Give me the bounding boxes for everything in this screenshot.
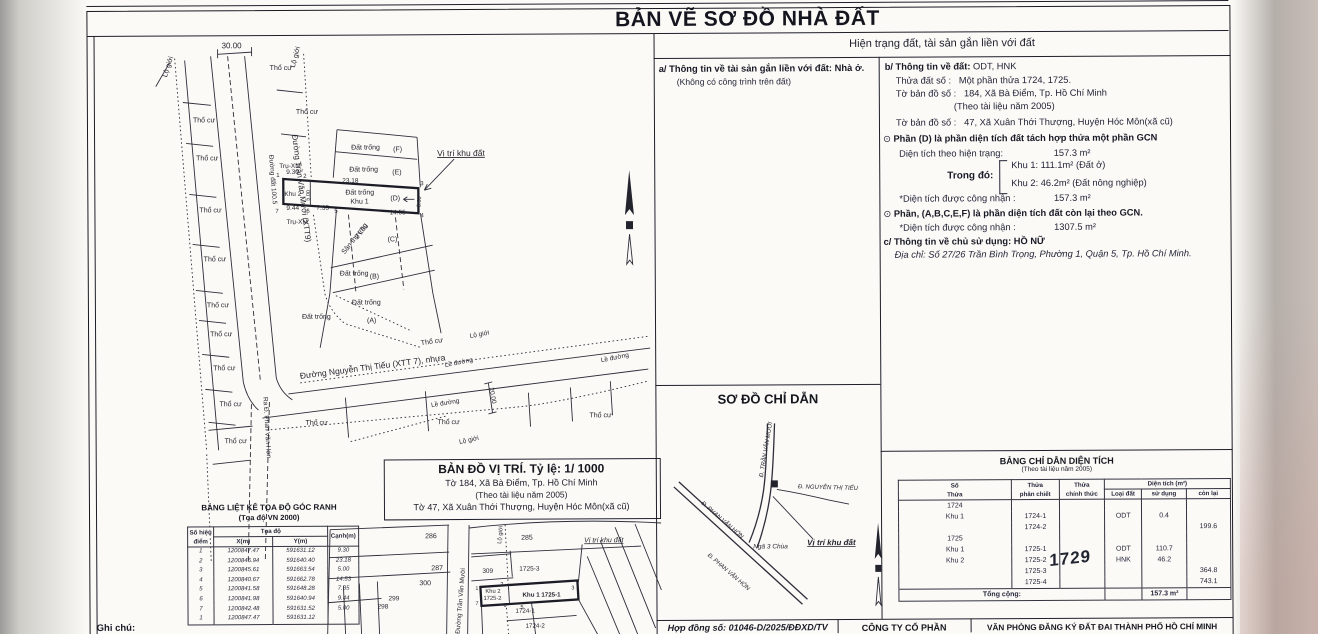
map-sheet-2-label: Tờ bản đồ số : xyxy=(896,117,956,127)
coord-edge: 5.00 xyxy=(328,566,359,576)
recognized-area-line-1: *Diện tích được công nhận : 157.3 m² xyxy=(899,193,1090,204)
area-split-parcel: 1724-2 xyxy=(1011,522,1059,533)
area-official-parcel xyxy=(1059,499,1104,511)
coord-edge: 9.44 xyxy=(328,595,359,605)
coords-table-title: BẢNG LIỆT KÊ TỌA ĐỘ GÓC RANH xyxy=(169,503,369,513)
area-header-group: Diện tích (m²) xyxy=(1104,479,1230,490)
registry-name: VĂN PHÒNG ĐĂNG KÝ ĐẤT ĐAI THÀNH PHỐ HỒ C… xyxy=(973,622,1232,632)
current-area-value: 157.3 m² xyxy=(1054,148,1091,158)
area-land-type xyxy=(1104,499,1141,511)
coord-x: 1200841.98 xyxy=(214,595,273,605)
location-map-title: BẢN ĐỒ VỊ TRÍ. Tỷ lệ: 1/ 1000 xyxy=(386,461,657,476)
coords-table: Số hiệu điểm Tọa độ Cạnh(m) X(m) Y(m) xyxy=(187,526,360,626)
area-official-parcel xyxy=(1059,511,1104,522)
coord-edge xyxy=(328,614,359,624)
company-name: CÔNG TY CỔ PHẦN xyxy=(840,622,969,633)
land-info-heading-label: b/ Thông tin về đất: xyxy=(885,61,971,71)
map-sheet-2-value: 47, Xã Xuân Thới Thượng, Huyện Hóc Môn(x… xyxy=(964,116,1173,127)
area-split-parcel xyxy=(1011,499,1059,511)
area-used xyxy=(1142,499,1186,511)
map-sheet-line: Tờ bản đồ số : 184, Xã Bà Điểm, Tp. Hồ C… xyxy=(896,88,1107,99)
area-remaining: 199.6 xyxy=(1186,521,1230,532)
coord-point: 4 xyxy=(188,576,214,586)
map-sheet-note: (Theo tài liệu năm 2005) xyxy=(954,101,1055,112)
coord-edge: 5.00 xyxy=(328,604,359,614)
coord-point: 5 xyxy=(188,586,214,596)
coords-header-edge: Cạnh(m) xyxy=(328,526,359,546)
owner-heading-label: c/ Thông tin về chủ sử dụng: xyxy=(884,236,1012,247)
coord-point: 3 xyxy=(188,567,214,577)
bracket-shape xyxy=(999,160,1007,194)
asset-info-heading: a/ Thông tin về tài sản gắn liền với đất… xyxy=(659,62,865,74)
area-parcel: Khu 1 xyxy=(899,511,1012,523)
coord-x: 1200845.61 xyxy=(214,566,273,576)
trong-do-label: Trong đó: xyxy=(947,170,993,181)
coord-y: 591663.54 xyxy=(273,566,328,576)
owner-heading: c/ Thông tin về chủ sử dụng: HỒ NỮ xyxy=(884,236,1045,247)
coord-point: 2 xyxy=(188,557,214,567)
coord-x: 1200842.48 xyxy=(214,605,273,615)
coord-point: 1 xyxy=(188,547,214,557)
area-parcel xyxy=(899,577,1012,589)
parcel-number-line: Thửa đất số : Một phần thửa 1724, 1725. xyxy=(896,75,1071,86)
area-split-parcel: 1725-4 xyxy=(1012,577,1060,589)
area-used xyxy=(1142,565,1186,576)
area-remaining xyxy=(1186,532,1230,543)
area-land-type: ODT xyxy=(1104,510,1141,521)
area-parcel: 1725 xyxy=(899,533,1012,545)
area-land-type: ODT xyxy=(1105,543,1142,554)
area-used xyxy=(1142,521,1186,532)
asset-info-note: (Không có công trình trên đất) xyxy=(677,76,791,87)
location-map-line2: (Theo tài liệu năm 2005) xyxy=(386,489,657,500)
current-area-line: Diện tích theo hiện trạng: 157.3 m² xyxy=(899,148,1090,159)
area-used xyxy=(1142,576,1186,588)
coords-header-group: Tọa độ xyxy=(214,526,328,537)
recognized-area-2-value: 1307.5 m² xyxy=(1054,222,1096,232)
area-remaining: 743.1 xyxy=(1187,576,1231,588)
map-sheet-value: 184, Xã Bà Điểm, Tp. Hồ Chí Minh xyxy=(964,88,1107,99)
coord-point: 6 xyxy=(188,595,214,605)
area-parcel: Khu 2 xyxy=(899,555,1012,567)
area-official-parcel xyxy=(1060,522,1105,533)
map-sheet-line-2: Tờ bản đồ số : 47, Xã Xuân Thới Thượng, … xyxy=(896,116,1173,127)
area-total-label: Tổng cộng: xyxy=(899,588,1105,601)
coord-x: 1200840.67 xyxy=(214,576,273,586)
area-split-parcel: 1724-1 xyxy=(1011,511,1059,522)
recognized-area-2-label: *Diện tích được công nhận : xyxy=(899,222,1051,233)
area-used: 46.2 xyxy=(1142,554,1186,565)
area-parcel xyxy=(899,566,1012,578)
coord-x: 1200847.47 xyxy=(214,547,273,557)
parcel-number-label: Thửa đất số : xyxy=(896,75,951,85)
bullet-d-text: Phần (D) là phần diện tích đất tách hợp … xyxy=(893,132,1157,143)
area-land-type xyxy=(1105,521,1142,532)
area-total-row: Tổng cộng: 157.3 m² xyxy=(899,588,1231,602)
coord-point: 7 xyxy=(188,605,214,615)
location-map-line1: Tờ 184, Xã Bà Điểm, Tp. Hồ Chí Minh xyxy=(386,477,657,488)
bullet-abcef-text: Phần, (A,B,C,E,F) là phần diện tích đất … xyxy=(894,207,1143,218)
recognized-area-1-label: *Diện tích được công nhận : xyxy=(899,193,1051,204)
land-info-heading-value: ODT, HNK xyxy=(973,61,1016,71)
coord-x: 1200841.58 xyxy=(214,585,273,595)
area-used xyxy=(1142,532,1186,543)
page-title: BẢN VẼ SƠ ĐỒ NHÀ ĐẤT xyxy=(558,7,936,33)
area-remaining xyxy=(1186,499,1230,511)
coord-edge: 9.30 xyxy=(328,546,359,556)
recognized-area-line-2: *Diện tích được công nhận : 1307.5 m² xyxy=(899,222,1096,233)
coords-header-point: Số hiệu xyxy=(189,529,211,536)
khu2-area: Khu 2: 46.2m² (Đất nông nghiệp) xyxy=(1011,177,1146,188)
coord-y: 591662.78 xyxy=(273,576,328,586)
footer-div-2 xyxy=(971,618,972,632)
area-parcel xyxy=(899,522,1012,534)
area-used: 0.4 xyxy=(1142,510,1186,521)
circle-dot-icon: ⊙ xyxy=(883,209,891,219)
coord-edge: 7.35 xyxy=(328,585,359,595)
area-remaining xyxy=(1186,510,1230,521)
map-sheet-label: Tờ bản đồ số : xyxy=(896,88,956,98)
owner-name: HỒ NỮ xyxy=(1014,236,1045,246)
scanned-land-survey-document: 30.00Lộ giớiLộ giớiThổ cưThổ cưThổ cưThổ… xyxy=(0,0,1318,634)
coord-point: 1 xyxy=(188,614,214,624)
coord-x: 1200846.94 xyxy=(214,557,273,567)
area-land-type xyxy=(1105,532,1142,543)
area-split-parcel xyxy=(1011,533,1059,544)
land-info-heading: b/ Thông tin về đất: ODT, HNK xyxy=(885,61,1017,72)
note-label: Ghi chú: xyxy=(97,623,136,634)
coords-header-x: X(m) xyxy=(214,537,273,547)
coords-header-y: Y(m) xyxy=(273,536,328,546)
coord-y: 591648.28 xyxy=(273,585,328,595)
area-remaining: 364.8 xyxy=(1186,565,1230,576)
coord-y: 591631.52 xyxy=(273,604,328,614)
area-parcel: Khu 1 xyxy=(899,544,1012,556)
area-used: 110.7 xyxy=(1142,543,1186,554)
coord-y: 591631.12 xyxy=(273,614,328,624)
coord-x: 1200847.47 xyxy=(214,614,273,624)
circle-dot-icon: ⊙ xyxy=(883,134,891,144)
coord-edge: 14.53 xyxy=(328,575,359,585)
scan-edge-left xyxy=(0,0,88,634)
owner-address: Địa chỉ: Số 27/26 Trần Bình Trọng, Phườn… xyxy=(895,248,1192,260)
area-official-parcel xyxy=(1060,533,1105,544)
document-page: 30.00Lộ giớiLộ giớiThổ cưThổ cưThổ cưThổ… xyxy=(0,0,1318,634)
area-table: Số Thửa Thửa phân chiết Thửa chính thức … xyxy=(898,478,1232,602)
coord-edge: 23.18 xyxy=(328,556,359,566)
location-map-line3: Tờ 47, Xã Xuân Thới Thượng, Huyện Hóc Mô… xyxy=(386,501,657,512)
footer-div-1 xyxy=(838,619,839,633)
guide-map-title: SƠ ĐỒ CHỈ DẪN xyxy=(655,391,880,407)
area-land-type: HNK xyxy=(1105,554,1142,565)
coord-y: 591640.94 xyxy=(273,595,328,605)
khu1-area: Khu 1: 111.1m² (Đất ở) xyxy=(1011,160,1105,170)
area-parcel: 1724 xyxy=(898,500,1011,512)
recognized-area-1-value: 157.3 m² xyxy=(1054,193,1091,203)
area-remaining xyxy=(1186,554,1230,565)
bullet-abcef-line: ⊙ Phần, (A,B,C,E,F) là phần diện tích đấ… xyxy=(883,207,1142,219)
area-land-type xyxy=(1105,576,1142,588)
area-land-type xyxy=(1105,565,1142,576)
contract-number: Hợp đồng số: 01046-D/2025/ĐĐXD/TV xyxy=(668,622,828,633)
coord-row: 1 1200847.47 591631.12 xyxy=(188,614,359,625)
coords-table-subtitle: (Tọa độ VN 2000) xyxy=(169,513,369,523)
area-total-value: 157.3 m² xyxy=(1142,588,1186,600)
area-remaining xyxy=(1186,543,1230,554)
bullet-d-line: ⊙ Phần (D) là phần diện tích đất tách hợ… xyxy=(883,132,1157,144)
parcel-number-value: Một phần thửa 1724, 1725. xyxy=(959,75,1071,86)
area-official-parcel xyxy=(1060,577,1105,589)
scan-edge-tint xyxy=(1240,300,1318,634)
current-area-label: Diện tích theo hiện trạng: xyxy=(899,148,1051,159)
coord-y: 591640.40 xyxy=(273,556,328,566)
coord-y: 591631.12 xyxy=(273,546,328,556)
